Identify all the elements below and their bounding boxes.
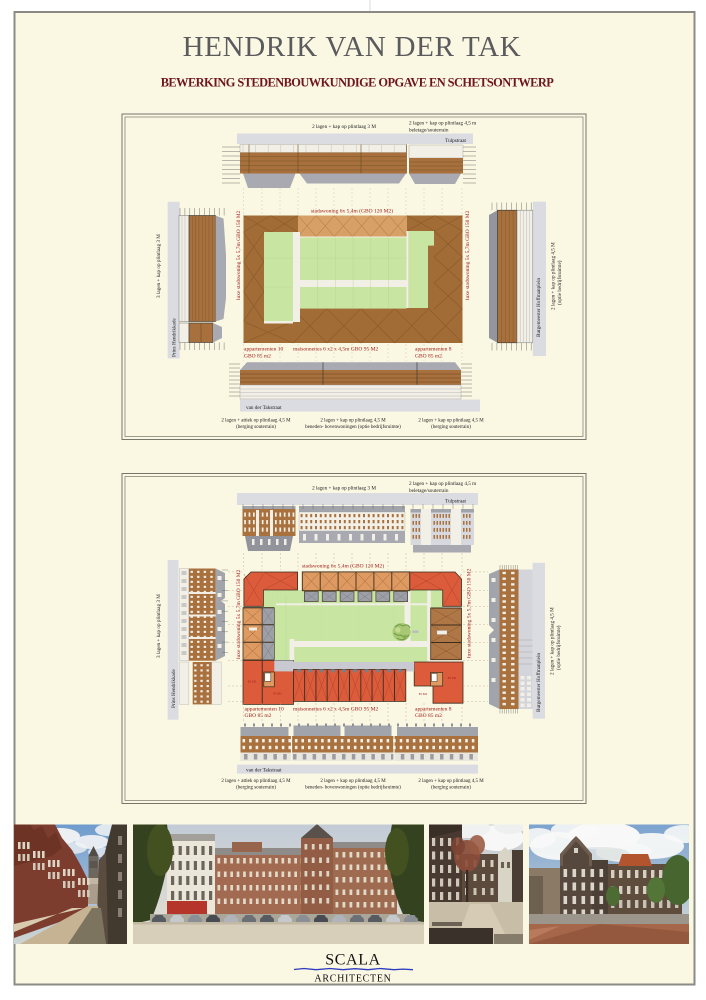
svg-text:2 lagen + kap op plintlaag 4,5: 2 lagen + kap op plintlaag 4,5 M — [551, 242, 557, 310]
svg-text:appartementen 10: appartementen 10 — [244, 347, 283, 353]
svg-text:Tulpstraat: Tulpstraat — [445, 138, 466, 144]
svg-text:3 lagen + kap op plintlaag 3 M: 3 lagen + kap op plintlaag 3 M — [156, 594, 162, 658]
svg-text:Prins Hendrikkade: Prins Hendrikkade — [172, 318, 178, 357]
svg-text:2 lagen + kap op plintlaag 4,5: 2 lagen + kap op plintlaag 4,5 M — [418, 419, 484, 424]
svg-text:luxe stadswoning 5x 5,7m GBO 1: luxe stadswoning 5x 5,7m GBO 150 M2 — [236, 210, 242, 300]
svg-text:GBO 85 m2: GBO 85 m2 — [245, 713, 272, 719]
svg-text:GBO 85 m2: GBO 85 m2 — [415, 354, 442, 360]
svg-text:appartementen 8: appartementen 8 — [415, 707, 452, 713]
svg-text:luxe stadswoning 5x 5,7m GBO 1: luxe stadswoning 5x 5,7m GBO 150 M2 — [236, 569, 242, 659]
svg-text:maisonnettes 6 x2 x 4,5m GBO 9: maisonnettes 6 x2 x 4,5m GBO 95 M2 — [293, 347, 378, 353]
svg-text:(optie bedrijfsruimte): (optie bedrijfsruimte) — [555, 625, 562, 670]
svg-text:beletage/souterrain: beletage/souterrain — [409, 128, 449, 134]
svg-text:2 lagen + kap op plintlaag 4,5: 2 lagen + kap op plintlaag 4,5 M — [320, 419, 386, 424]
svg-text:appartementen 10: appartementen 10 — [245, 707, 284, 713]
svg-text:BEWERKING STEDENBOUWKUNDIGE OP: BEWERKING STEDENBOUWKUNDIGE OPGAVE EN SC… — [161, 76, 555, 90]
svg-text:(berging souterrain): (berging souterrain) — [236, 425, 276, 430]
svg-text:van der Takstraat: van der Takstraat — [246, 405, 282, 411]
svg-text:Burgemeester Hoffmanplein: Burgemeester Hoffmanplein — [535, 278, 542, 337]
svg-text:appartementen 8: appartementen 8 — [415, 347, 452, 353]
svg-text:85 M2: 85 M2 — [248, 680, 257, 684]
svg-text:2 lagen + kap op plintlaag 3 M: 2 lagen + kap op plintlaag 3 M — [312, 486, 376, 492]
svg-text:beneden- bovenwoningen (optie: beneden- bovenwoningen (optie bedrijfsru… — [305, 786, 401, 791]
svg-text:Tulpstraat: Tulpstraat — [445, 499, 466, 505]
svg-text:GBO 85 m2: GBO 85 m2 — [415, 713, 442, 719]
svg-text:2 lagen + kap op plintlaag 4,5: 2 lagen + kap op plintlaag 4,5 M — [320, 779, 386, 784]
svg-text:2 lagen + kap op plintlaag 4,5: 2 lagen + kap op plintlaag 4,5 m — [409, 481, 476, 487]
svg-text:85 M2: 85 M2 — [419, 692, 428, 696]
svg-text:SCALA: SCALA — [325, 952, 380, 969]
svg-text:85 M2: 85 M2 — [448, 676, 457, 680]
svg-text:Burgemeester Hoffmanplein: Burgemeester Hoffmanplein — [535, 653, 542, 712]
svg-text:2 lagen + attiek op plintlaag: 2 lagen + attiek op plintlaag 4,5 M — [221, 779, 291, 784]
svg-text:luxe stadswoning 5x 5,7m GBO 1: luxe stadswoning 5x 5,7m GBO 150 M2 — [465, 210, 471, 300]
svg-text:2 lagen + kap op plintlaag 4,5: 2 lagen + kap op plintlaag 4,5 m — [409, 121, 476, 127]
svg-text:(berging souterrain): (berging souterrain) — [431, 786, 471, 791]
svg-text:2 lagen + kap op plintlaag 3 M: 2 lagen + kap op plintlaag 3 M — [312, 124, 376, 130]
svg-text:(berging souterrain): (berging souterrain) — [236, 786, 276, 791]
svg-text:85 M2: 85 M2 — [273, 692, 282, 696]
svg-text:2 lagen + kap op plintlaag 4,5: 2 lagen + kap op plintlaag 4,5 M — [418, 779, 484, 784]
svg-text:van der Takstraat: van der Takstraat — [246, 768, 282, 774]
svg-text:2 lagen + attiek op plintlaag: 2 lagen + attiek op plintlaag 4,5 M — [221, 419, 291, 424]
svg-text:luxe stadswoning 5x 5,7m GBO 1: luxe stadswoning 5x 5,7m GBO 150 M2 — [466, 568, 472, 658]
svg-text:ARCHITECTEN: ARCHITECTEN — [314, 974, 391, 985]
svg-text:GBO 85 m2: GBO 85 m2 — [244, 354, 271, 360]
svg-text:2 lagen + kap op plintlaag 4,5: 2 lagen + kap op plintlaag 4,5 M — [550, 607, 556, 675]
svg-text:beneden- bovenwoningen (optie: beneden- bovenwoningen (optie bedrijfsru… — [305, 425, 401, 430]
svg-text:(optie bedrijfsruimte): (optie bedrijfsruimte) — [556, 260, 563, 305]
svg-text:maisonnettes 6 x2 x 4,5m GBO 9: maisonnettes 6 x2 x 4,5m GBO 95 M2 — [293, 707, 378, 713]
svg-text:stadswoning 6x 5,4m (GBO 120 M: stadswoning 6x 5,4m (GBO 120 M2) — [302, 563, 384, 570]
svg-text:HENDRIK VAN DER TAK: HENDRIK VAN DER TAK — [183, 31, 522, 63]
svg-text:3 lagen + kap op plintlaag 3 M: 3 lagen + kap op plintlaag 3 M — [156, 234, 162, 298]
svg-text:Prins Hendrikkade: Prins Hendrikkade — [171, 669, 177, 708]
svg-text:(berging souterrain): (berging souterrain) — [431, 425, 471, 430]
